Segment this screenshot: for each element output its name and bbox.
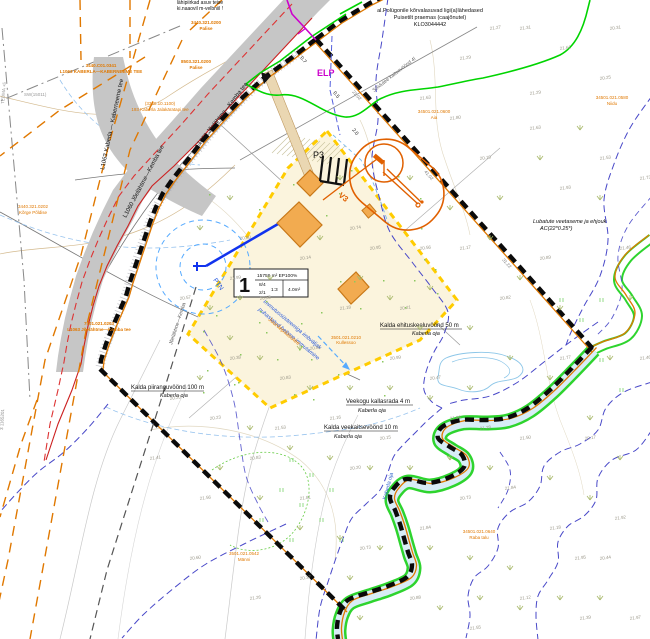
svg-text:Veekogu kallasrada 4 m: Veekogu kallasrada 4 m: [346, 399, 410, 405]
svg-text:Kaberla oja: Kaberla oja: [412, 331, 440, 337]
svg-text:193 Kaberla Jalakäratapi tee: 193 Kaberla Jalakäratapi tee: [131, 107, 189, 112]
svg-text:KLO3044442: KLO3044442: [414, 22, 446, 28]
svg-text:Aia: Aia: [431, 115, 438, 120]
svg-text:Lubatute veetaseme ja ehjouk: Lubatute veetaseme ja ehjouk: [533, 219, 607, 225]
svg-text:4.0m²: 4.0m²: [288, 287, 301, 293]
svg-text:al.Polügonile kõrvalasuvad lig: al.Polügonile kõrvalasuvad ligi(a)läheda…: [377, 8, 483, 14]
svg-text:Palise: Palise: [189, 65, 203, 70]
svg-text:Kalda piiranguvöönd 100 m: Kalda piiranguvöönd 100 m: [131, 385, 204, 391]
svg-text:Puisetilt praemas (caajõnutel): Puisetilt praemas (caajõnutel): [394, 15, 467, 21]
svg-text:ki.naaovil m-velbniil !: ki.naaovil m-velbniil !: [177, 6, 223, 12]
svg-text:Niidu: Niidu: [607, 101, 618, 106]
svg-text:3440.321.0202: 3440.321.0202: [18, 204, 49, 209]
svg-text:L1063 KABERLA—KABERNEEME TEE: L1063 KABERLA—KABERNEEME TEE: [60, 69, 143, 74]
svg-text:Kalda veekaitsevöönd 10 m: Kalda veekaitsevöönd 10 m: [324, 425, 398, 431]
svg-text:L1063 Jõelähtme—Kemba tee: L1063 Jõelähtme—Kemba tee: [67, 327, 131, 332]
svg-text:Kaberla oja: Kaberla oja: [358, 408, 386, 414]
svg-text:Kalda ehituskeeluvöönd 50 m: Kalda ehituskeeluvöönd 50 m: [380, 323, 459, 329]
svg-text:Raba talu: Raba talu: [469, 535, 489, 540]
svg-text:3501.021.0542: 3501.021.0542: [229, 551, 260, 556]
svg-text:3440.321.0200: 3440.321.0200: [191, 20, 222, 25]
svg-text:34501.021.0580: 34501.021.0580: [596, 95, 629, 100]
svg-text:15759 m² EP100%: 15759 m² EP100%: [257, 273, 298, 279]
svg-text:SW(15011): SW(15011): [24, 92, 47, 97]
svg-text:34501.021.0640: 34501.021.0640: [463, 529, 496, 534]
svg-text:8/4: 8/4: [259, 282, 266, 288]
svg-text:ELP: ELP: [317, 68, 335, 78]
svg-text:AC(22*0.25*): AC(22*0.25*): [539, 226, 573, 232]
svg-text:P3: P3: [313, 150, 324, 160]
svg-text:(3330.10.1100): (3330.10.1100): [145, 101, 176, 106]
svg-text:8503.321.0200: 8503.321.0200: [181, 59, 212, 64]
svg-text:34501.021.0600: 34501.021.0600: [418, 109, 451, 114]
svg-text:Männi: Männi: [238, 557, 250, 562]
svg-text:3440.C01.0341: 3440.C01.0341: [86, 63, 117, 68]
svg-text:Palise: Palise: [199, 26, 213, 31]
svg-text:Kõrge Põldise: Kõrge Põldise: [19, 210, 48, 215]
svg-text:Kullessoo: Kullessoo: [336, 340, 356, 345]
svg-text:1:3: 1:3: [271, 287, 278, 293]
svg-text:7501.021.0203: 7501.021.0203: [84, 321, 115, 326]
svg-text:Kaberla oja: Kaberla oja: [334, 434, 362, 440]
